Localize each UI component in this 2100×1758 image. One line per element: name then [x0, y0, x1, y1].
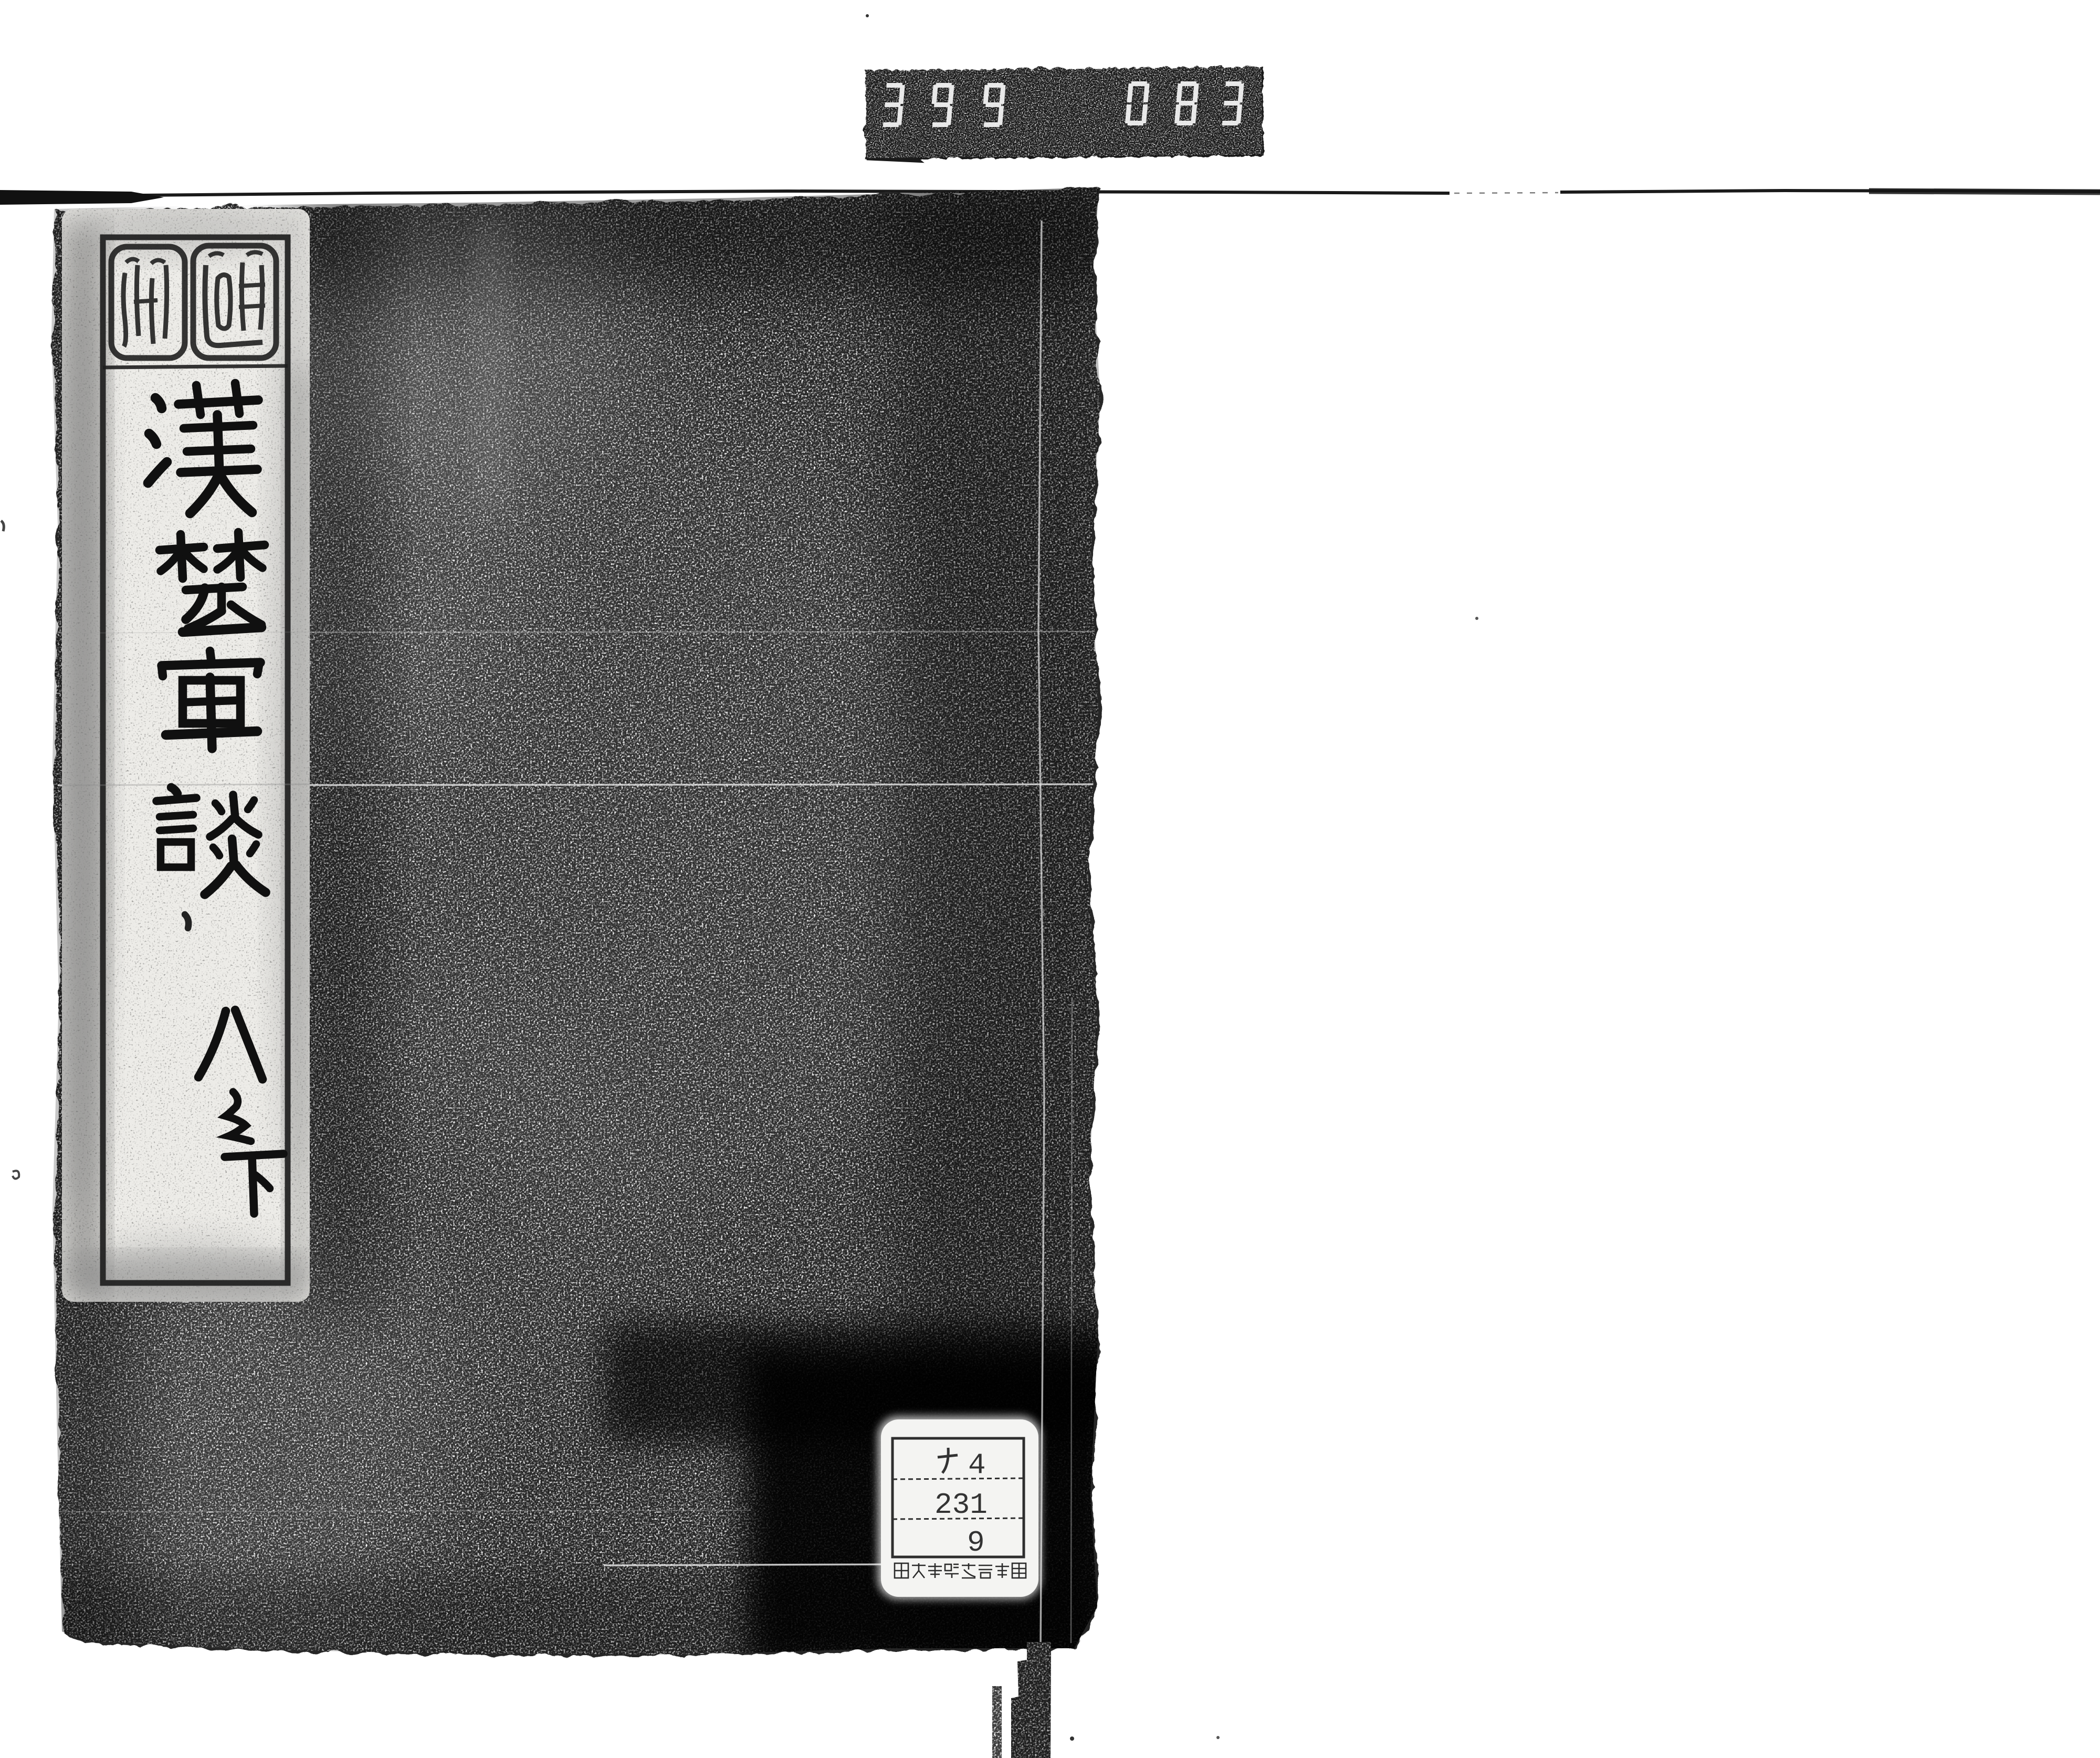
- svg-text:4: 4: [968, 1448, 986, 1482]
- svg-text:231: 231: [934, 1488, 988, 1522]
- svg-text:9: 9: [967, 1526, 985, 1560]
